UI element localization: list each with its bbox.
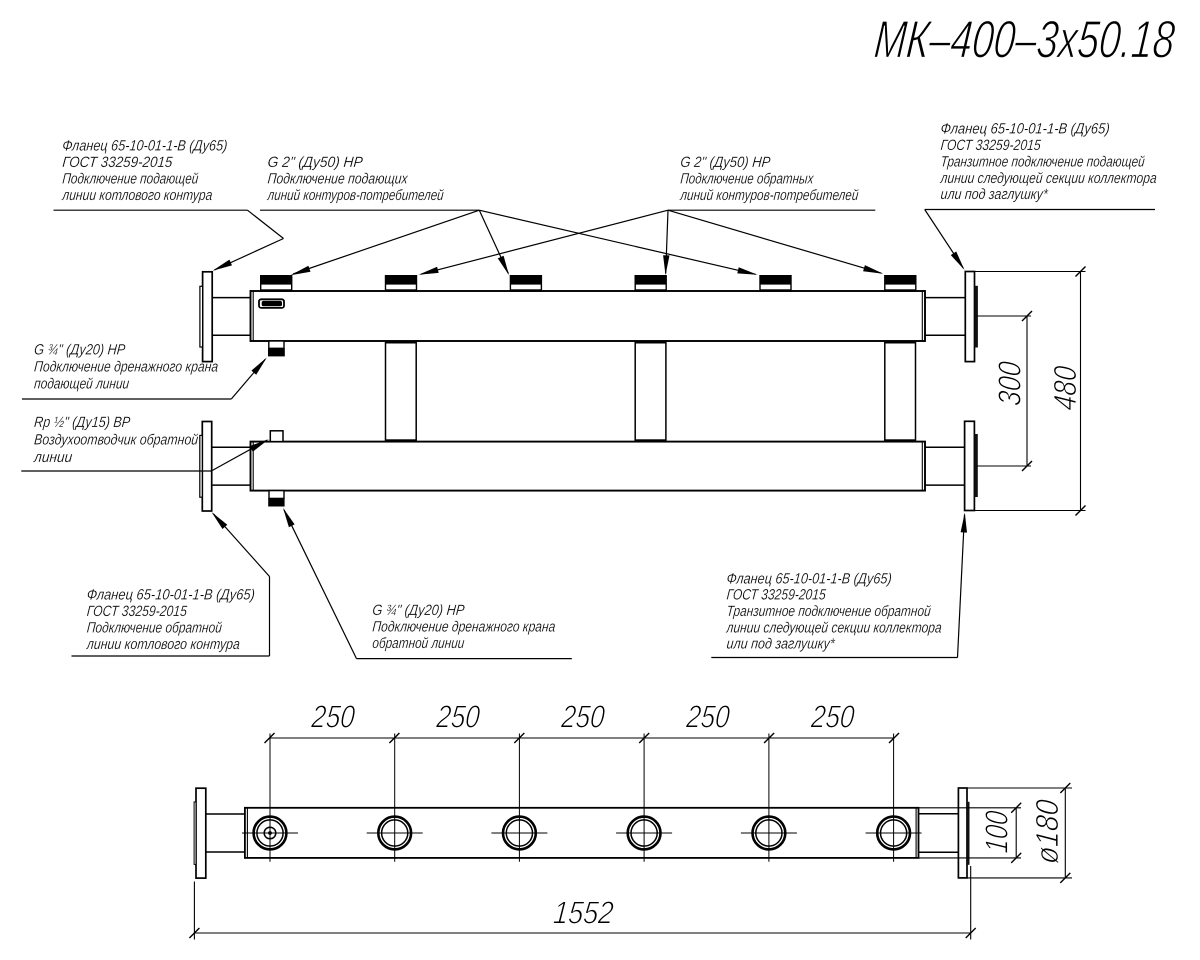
svg-text:Подключение обратных: Подключение обратных	[680, 171, 815, 188]
svg-text:Воздухоотводчик обратной: Воздухоотводчик обратной	[33, 432, 199, 449]
svg-text:G 2" (Ду50) НР: G 2" (Ду50) НР	[267, 154, 363, 171]
svg-text:ГОСТ 33259-2015: ГОСТ 33259-2015	[726, 587, 827, 604]
svg-text:Фланец 65-10-01-1-В (Ду65): Фланец 65-10-01-1-В (Ду65)	[940, 121, 1110, 138]
svg-text:G ¾" (Ду20) НР: G ¾" (Ду20) НР	[33, 342, 125, 359]
svg-text:Фланец 65-10-01-1-В (Ду65): Фланец 65-10-01-1-В (Ду65)	[62, 138, 228, 155]
svg-text:линии котлового контура: линии котлового контура	[61, 187, 213, 204]
svg-text:1552: 1552	[552, 895, 615, 931]
svg-text:ø180: ø180	[1029, 798, 1065, 865]
svg-text:линий контуров-потребителей: линий контуров-потребителей	[679, 187, 860, 204]
svg-text:ГОСТ 33259-2015: ГОСТ 33259-2015	[940, 137, 1042, 154]
svg-text:250: 250	[684, 699, 731, 735]
svg-text:250: 250	[809, 699, 856, 735]
svg-text:Подключение подающей: Подключение подающей	[62, 171, 200, 188]
svg-text:Транзитное подключение обратно: Транзитное подключение обратной	[726, 603, 932, 620]
svg-text:Фланец 65-10-01-1-В (Ду65): Фланец 65-10-01-1-В (Ду65)	[726, 570, 892, 587]
svg-text:линии следующей секции коллект: линии следующей секции коллектора	[939, 170, 1157, 187]
svg-text:Rp ½" (Ду15) ВР: Rp ½" (Ду15) ВР	[33, 414, 130, 431]
svg-text:ГОСТ 33259-2015: ГОСТ 33259-2015	[62, 154, 174, 171]
svg-text:линии: линии	[33, 449, 74, 466]
svg-text:G 2" (Ду50) НР: G 2" (Ду50) НР	[680, 154, 771, 171]
svg-text:Подключение обратной: Подключение обратной	[86, 619, 223, 636]
svg-text:Подключение дренажного крана: Подключение дренажного крана	[33, 359, 218, 376]
svg-text:или под заглушку*: или под заглушку*	[726, 636, 836, 653]
svg-text:или под заглушку*: или под заглушку*	[940, 186, 1049, 203]
svg-text:250: 250	[434, 699, 481, 735]
svg-text:обратной линии: обратной линии	[372, 635, 466, 652]
svg-text:ГОСТ 33259-2015: ГОСТ 33259-2015	[86, 603, 188, 620]
svg-text:480: 480	[1047, 364, 1083, 411]
svg-text:250: 250	[559, 699, 606, 735]
svg-text:линий контуров-потребителей: линий контуров-потребителей	[266, 187, 445, 204]
svg-text:линии следующей секции коллект: линии следующей секции коллектора	[725, 619, 942, 636]
svg-text:подающей линии: подающей линии	[33, 376, 130, 393]
svg-text:300: 300	[992, 360, 1028, 407]
svg-text:МК–400–3х50.18: МК–400–3х50.18	[872, 11, 1177, 70]
svg-text:Транзитное подключение подающе: Транзитное подключение подающей	[940, 153, 1146, 170]
svg-text:100: 100	[979, 809, 1015, 854]
svg-text:Подключение подающих: Подключение подающих	[267, 171, 409, 188]
svg-text:250: 250	[309, 699, 356, 735]
svg-text:Подключение дренажного крана: Подключение дренажного крана	[372, 619, 556, 636]
svg-text:Фланец 65-10-01-1-В (Ду65): Фланец 65-10-01-1-В (Ду65)	[86, 586, 255, 603]
svg-text:линии котлового контура: линии котлового контура	[85, 636, 240, 653]
svg-text:G ¾" (Ду20) НР: G ¾" (Ду20) НР	[372, 602, 465, 619]
